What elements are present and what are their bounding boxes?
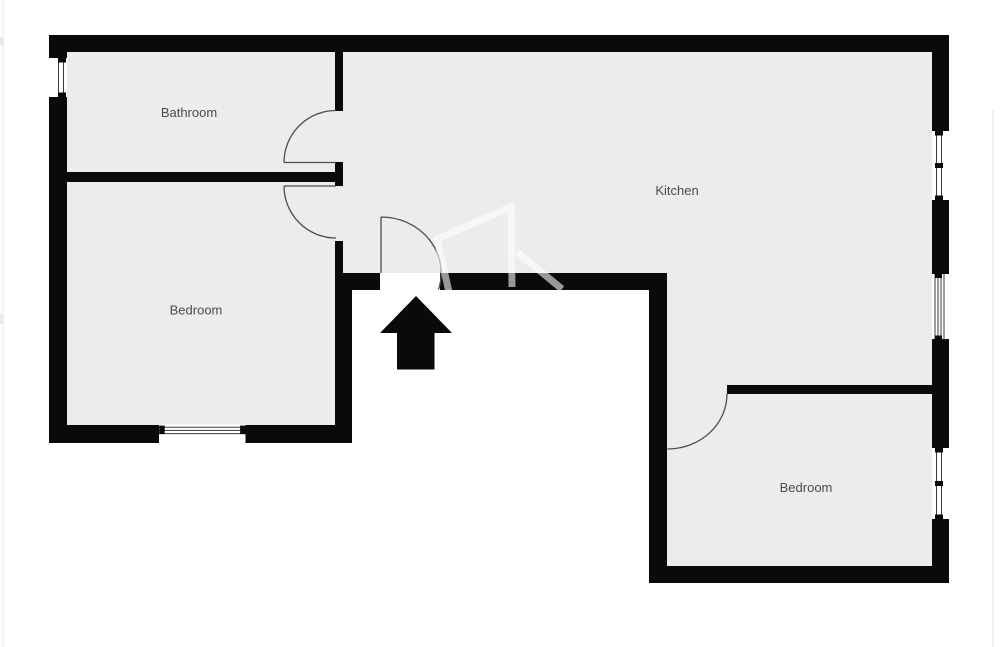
svg-text:Bedroom: Bedroom bbox=[170, 303, 223, 318]
svg-text:Bedroom: Bedroom bbox=[780, 480, 833, 495]
svg-text:Kitchen: Kitchen bbox=[655, 183, 698, 198]
svg-text:Bathroom: Bathroom bbox=[161, 105, 217, 120]
